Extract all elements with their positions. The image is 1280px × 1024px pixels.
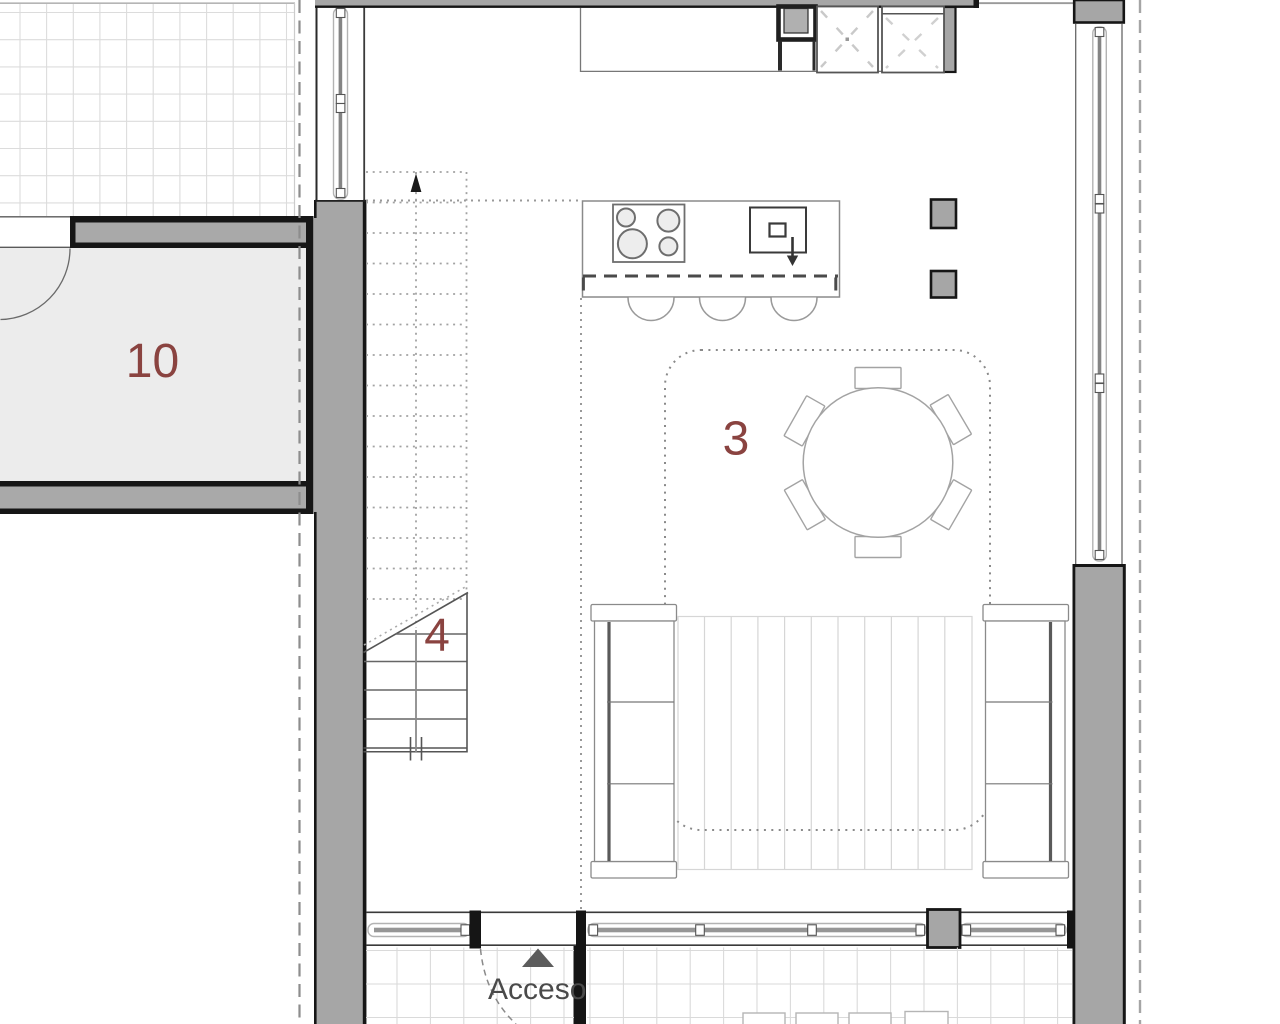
svg-text:10: 10 (126, 335, 179, 388)
svg-text:4: 4 (424, 609, 450, 661)
svg-text:Acceso: Acceso (488, 973, 586, 1006)
svg-text:3: 3 (723, 413, 750, 466)
